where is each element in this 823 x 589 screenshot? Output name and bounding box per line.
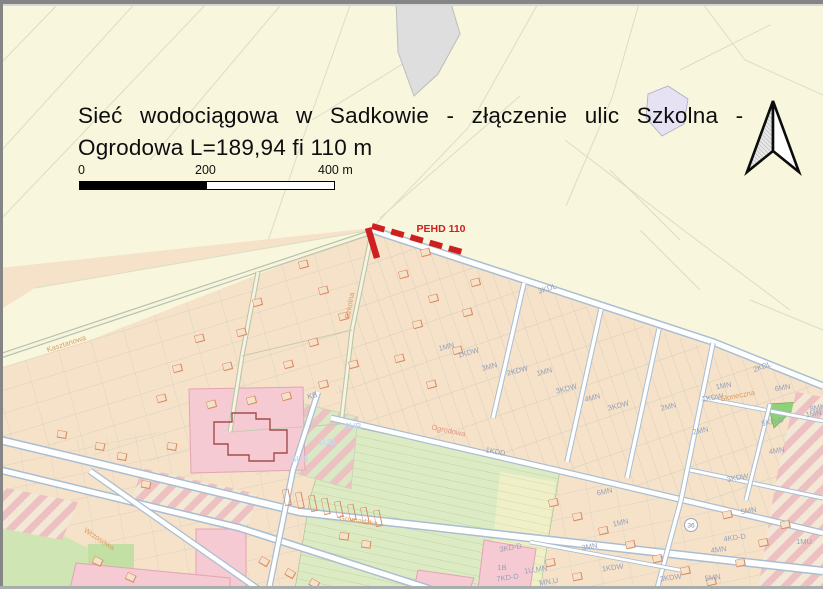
area-label: 5UB xyxy=(291,454,308,464)
scale-bar-graphic xyxy=(79,181,335,190)
map-title: Sieć wodociągowa w Sadkowie - złączenie … xyxy=(78,100,778,164)
scale-tick-0: 0 xyxy=(78,163,85,177)
map-canvas: 3KDL 1MN 1KDW 3MN 2KDW 1MN 3KDW 4MN 3KDW… xyxy=(0,0,823,589)
scale-tick-400: 400 m xyxy=(318,163,353,177)
zone-label: 1MU xyxy=(796,537,812,546)
road-number-badge: 36 xyxy=(685,519,698,532)
scale-tick-200: 200 xyxy=(195,163,216,177)
pipeline-label: PEHD 110 xyxy=(416,223,465,235)
road-number: 36 xyxy=(687,523,695,530)
area-label: 1UB xyxy=(318,437,335,447)
map-screenshot: 3KDL 1MN 1KDW 3MN 2KDW 1MN 3KDW 4MN 3KDW… xyxy=(0,0,823,589)
zone-label: 1B xyxy=(497,563,506,572)
map-title-line2: Ogrodowa L=189,94 fi 110 m xyxy=(78,132,778,164)
map-title-line1: Sieć wodociągowa w Sadkowie - złączenie … xyxy=(78,100,778,132)
canvas-border-left xyxy=(0,0,3,589)
canvas-border-top-light xyxy=(0,4,823,6)
area-label: 6UB xyxy=(344,421,361,431)
gray-area xyxy=(396,0,460,96)
